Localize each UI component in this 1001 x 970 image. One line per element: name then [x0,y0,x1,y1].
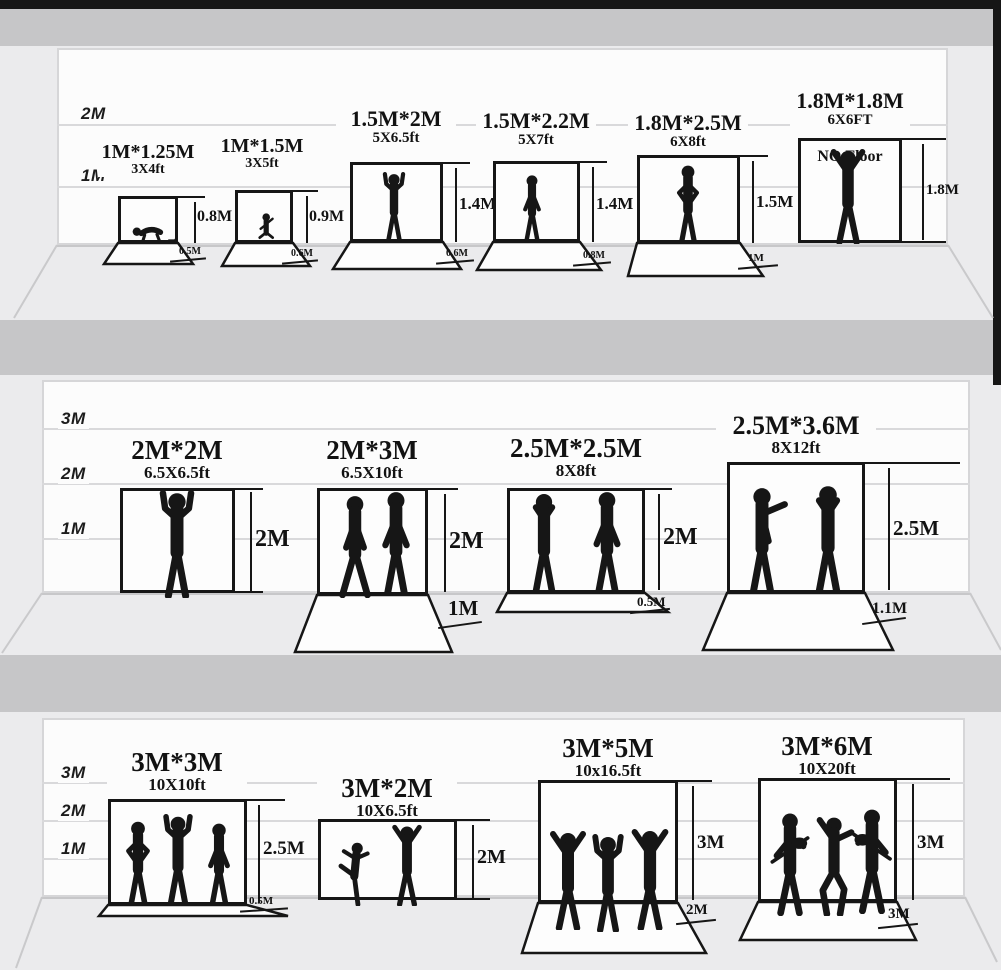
back-wall [42,380,970,593]
scale-label-2m: 2M [58,801,89,821]
top-shelf-band [0,9,1001,46]
scale-label-2m: 2M [58,464,89,484]
scale-label-1m: 1M [58,839,89,859]
backdrop-size-infographic: 2M 1M 3M 2M 1M 3M 2M 1M 1M*1.25M3X4ft [0,0,1001,970]
right-black-strip [993,0,1001,385]
scale-label-1m: 1M [78,166,109,186]
scale-label-3m: 3M [58,409,89,429]
scale-label-2m: 2M [78,104,109,124]
floor-perspective-lines [0,593,1001,655]
top-black-bar [0,0,1001,9]
divider-band-1 [0,320,1001,375]
scale-label-1m: 1M [58,519,89,539]
divider-band-2 [0,655,1001,712]
back-wall [57,48,948,245]
floor-perspective-lines [0,897,1001,970]
floor-perspective-lines [0,245,1001,320]
scale-label-3m: 3M [58,763,89,783]
back-wall [42,718,965,897]
